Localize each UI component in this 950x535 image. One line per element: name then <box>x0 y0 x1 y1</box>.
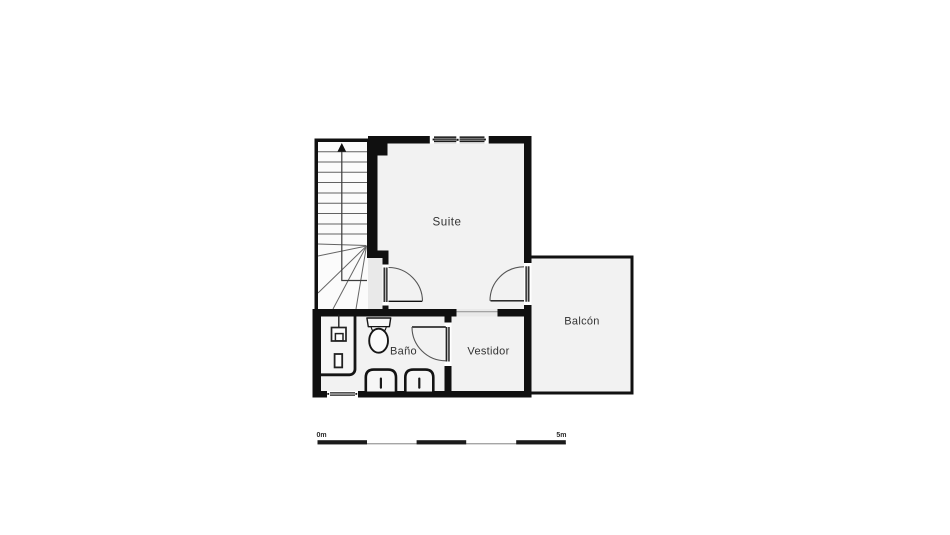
svg-text:0m: 0m <box>317 432 327 439</box>
svg-text:Balcón: Balcón <box>564 316 599 328</box>
svg-text:Vestidor: Vestidor <box>467 346 509 358</box>
svg-text:Baño: Baño <box>390 346 417 358</box>
svg-text:Suite: Suite <box>433 215 462 228</box>
svg-text:5m: 5m <box>556 432 566 439</box>
